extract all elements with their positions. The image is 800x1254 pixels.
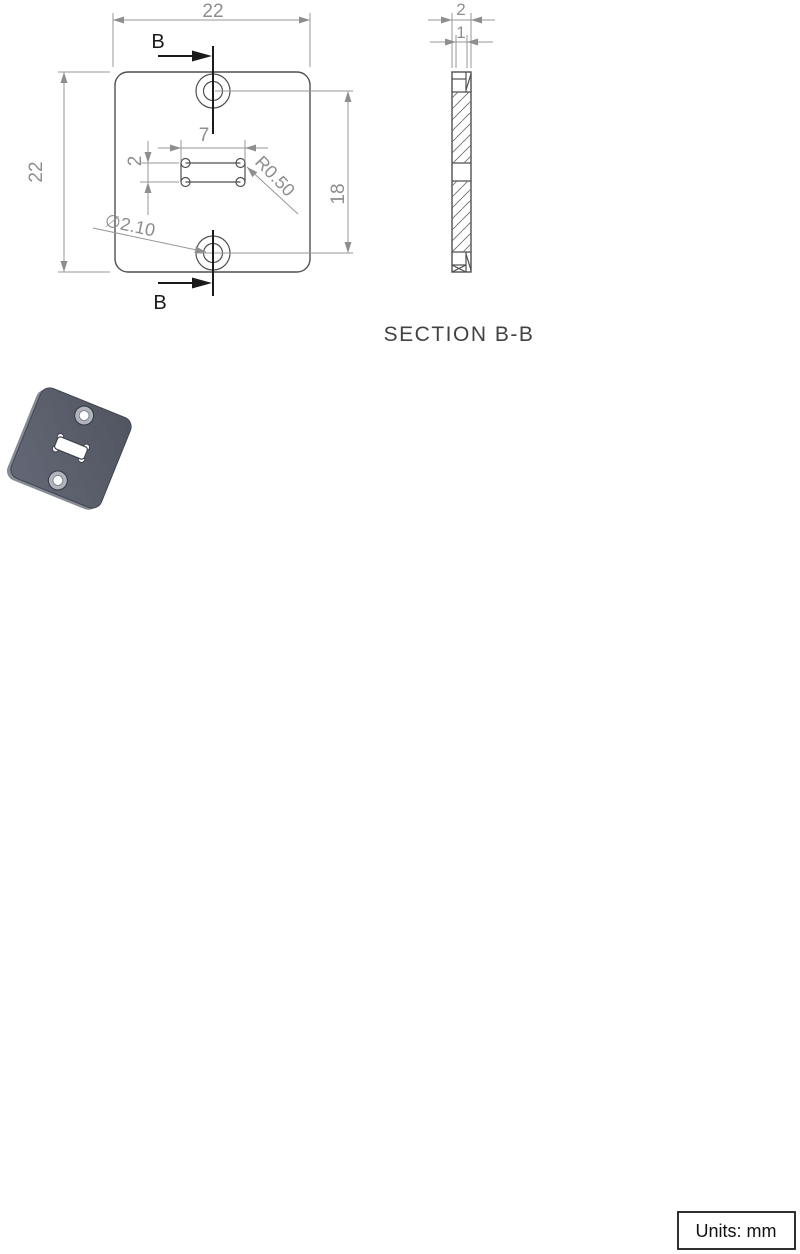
dim-overall-width-value: 22 xyxy=(202,1,223,22)
part-3d-view xyxy=(4,384,134,514)
drawing-canvas: 22 22 18 7 xyxy=(0,0,800,1254)
dim-thickness-value: 2 xyxy=(456,0,465,19)
section-arrow-bottom-label: B xyxy=(153,292,166,314)
units-box: Units: mm xyxy=(678,1212,795,1249)
front-view: 22 22 18 7 xyxy=(26,1,353,314)
dim-slot-length-value: 7 xyxy=(199,125,210,146)
dim-overall-height: 22 xyxy=(26,72,110,272)
section-arrow-top-label: B xyxy=(151,31,164,53)
section-view: 2 1 SECTION B-B xyxy=(384,0,535,346)
dim-overall-width: 22 xyxy=(113,1,310,67)
label-hole-diameter: ∅2.10 xyxy=(93,210,206,253)
dim-recess-value: 1 xyxy=(456,23,465,42)
section-caption: SECTION B-B xyxy=(384,323,535,346)
slot-outline xyxy=(181,159,245,187)
dim-overall-height-value: 22 xyxy=(26,161,47,182)
section-arrow-bottom-icon xyxy=(192,278,212,289)
section-arrow-top-icon xyxy=(192,51,212,62)
dim-slot-width: 2 xyxy=(125,141,179,215)
dim-hole-spacing-value: 18 xyxy=(328,183,349,204)
dim-recess: 1 xyxy=(430,23,493,68)
section-hatch-upper xyxy=(453,93,471,163)
drawing-sheet: 22 22 18 7 xyxy=(0,0,800,1254)
units-label: Units: mm xyxy=(696,1221,777,1241)
section-hatch-lower xyxy=(453,182,471,252)
label-slot-radius: R0.50 xyxy=(247,152,299,214)
dim-slot-width-value: 2 xyxy=(125,156,146,167)
